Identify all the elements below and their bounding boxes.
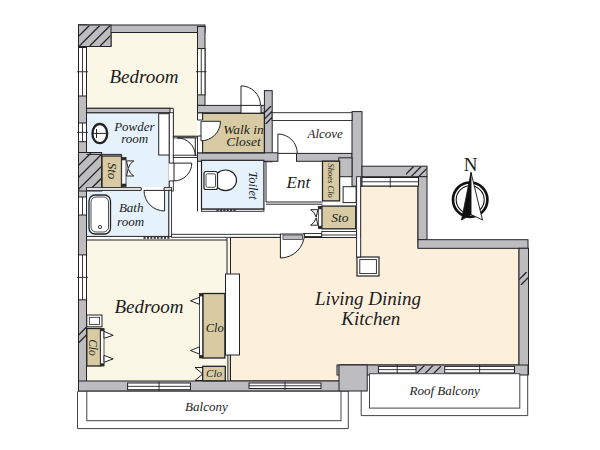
svg-text:Clo: Clo bbox=[206, 321, 224, 335]
svg-text:Ent: Ent bbox=[286, 173, 312, 192]
svg-text:Alcove: Alcove bbox=[307, 126, 344, 141]
svg-text:Clo: Clo bbox=[206, 367, 222, 379]
svg-text:Toilet: Toilet bbox=[246, 171, 260, 200]
svg-text:Balcony: Balcony bbox=[185, 399, 228, 414]
svg-text:Closet: Closet bbox=[226, 134, 262, 149]
svg-text:Living Dining: Living Dining bbox=[314, 288, 421, 309]
svg-text:Roof Balcony: Roof Balcony bbox=[408, 383, 480, 398]
svg-text:room: room bbox=[117, 214, 144, 229]
svg-text:Sto: Sto bbox=[105, 163, 120, 180]
svg-text:Bedroom: Bedroom bbox=[115, 296, 184, 317]
svg-text:Sto: Sto bbox=[331, 210, 349, 225]
svg-text:Clo: Clo bbox=[87, 339, 99, 356]
svg-text:room: room bbox=[121, 131, 148, 146]
svg-text:Bedroom: Bedroom bbox=[110, 66, 179, 87]
svg-text:Kitchen: Kitchen bbox=[340, 308, 400, 329]
svg-text:Shoes Clo: Shoes Clo bbox=[326, 164, 336, 198]
svg-text:N: N bbox=[464, 154, 478, 175]
